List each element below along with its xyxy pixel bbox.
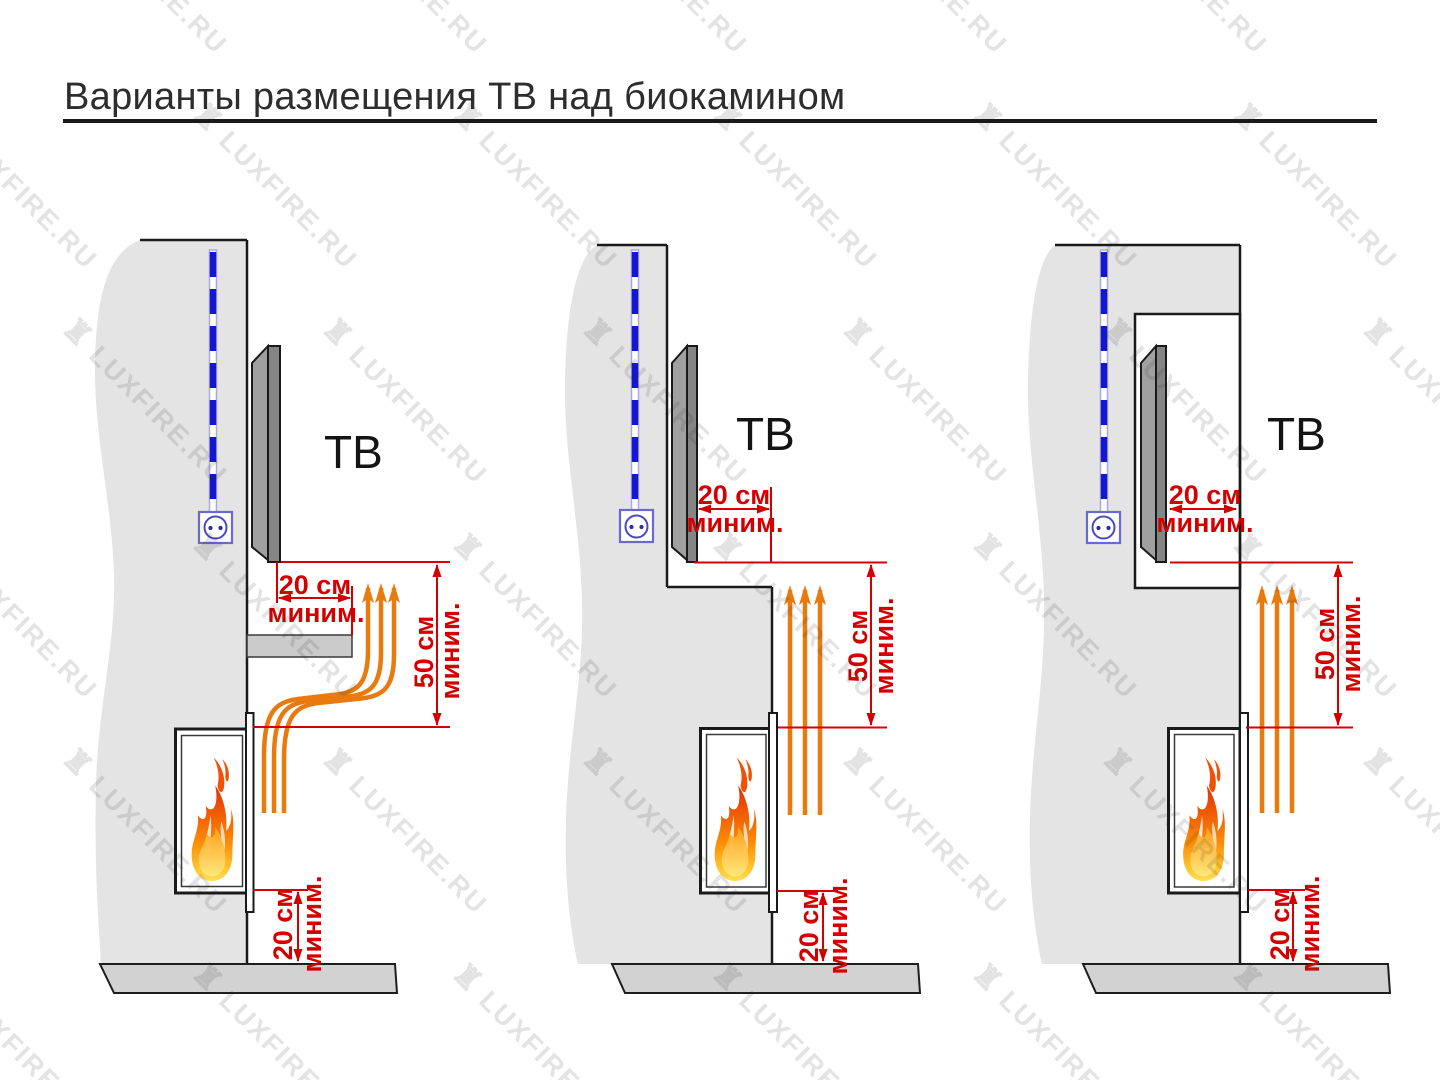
tv-label: ТВ bbox=[736, 408, 795, 460]
power-cable bbox=[632, 250, 639, 510]
power-cable bbox=[210, 250, 217, 512]
fireplace-glass-front bbox=[769, 713, 777, 912]
heat-arrows bbox=[790, 590, 820, 815]
fireplace-glass-front bbox=[1240, 713, 1248, 912]
dim-50cm-qualifier: миним. bbox=[1336, 596, 1366, 693]
diagram-shelf-variant: ТВ 20 см bbox=[95, 240, 465, 993]
floor bbox=[100, 964, 397, 993]
dim-20cm-floor-value: 20 см bbox=[268, 888, 298, 961]
bio-fireplace bbox=[176, 713, 254, 912]
bio-fireplace bbox=[1169, 713, 1249, 912]
dim-50cm-qualifier: миним. bbox=[435, 603, 465, 700]
power-outlet bbox=[1087, 512, 1120, 543]
tv-placement-diagrams: ТВ 20 см bbox=[0, 0, 1440, 1080]
power-outlet bbox=[620, 510, 653, 542]
protective-shelf bbox=[247, 635, 352, 657]
tv-label: ТВ bbox=[324, 426, 383, 478]
dim-20cm-shelf-value: 20 см bbox=[279, 570, 352, 600]
heat-arrows bbox=[1262, 590, 1292, 813]
dim-20cm-floor-qualifier: миним. bbox=[297, 876, 327, 973]
infographic-page: Варианты размещения ТВ над биокамином ♜L… bbox=[0, 0, 1440, 1080]
tv-label: ТВ bbox=[1267, 408, 1326, 460]
diagram-recessed-tv-variant: ТВ 20 см миним. bbox=[565, 245, 920, 993]
dim-20cm-niche-qualifier: миним. bbox=[1157, 508, 1254, 538]
power-cable bbox=[1101, 250, 1108, 512]
fireplace-glass-front bbox=[246, 713, 254, 912]
dim-20cm-shelf-qualifier: миним. bbox=[268, 598, 365, 628]
dim-50cm-qualifier: миним. bbox=[869, 598, 899, 695]
power-outlet bbox=[199, 512, 232, 543]
diagram-niche-variant: ТВ 20 см миним. 50 с bbox=[1028, 245, 1390, 993]
dim-20cm-floor-qualifier: миним. bbox=[823, 878, 853, 975]
dim-20cm-setback-value: 20 см bbox=[698, 480, 771, 510]
dim-20cm-floor-qualifier: миним. bbox=[1295, 876, 1325, 973]
title-underline bbox=[63, 119, 1377, 123]
dim-20cm-floor-value: 20 см bbox=[794, 890, 824, 963]
tv bbox=[252, 346, 280, 562]
floor bbox=[1083, 964, 1390, 993]
dim-20cm-niche-value: 20 см bbox=[1169, 480, 1242, 510]
floor bbox=[612, 964, 920, 993]
dim-20cm-floor-value: 20 см bbox=[1265, 888, 1295, 961]
bio-fireplace bbox=[701, 713, 778, 912]
dim-20cm-setback-qualifier: миним. bbox=[687, 508, 784, 538]
page-title: Варианты размещения ТВ над биокамином bbox=[64, 76, 845, 119]
